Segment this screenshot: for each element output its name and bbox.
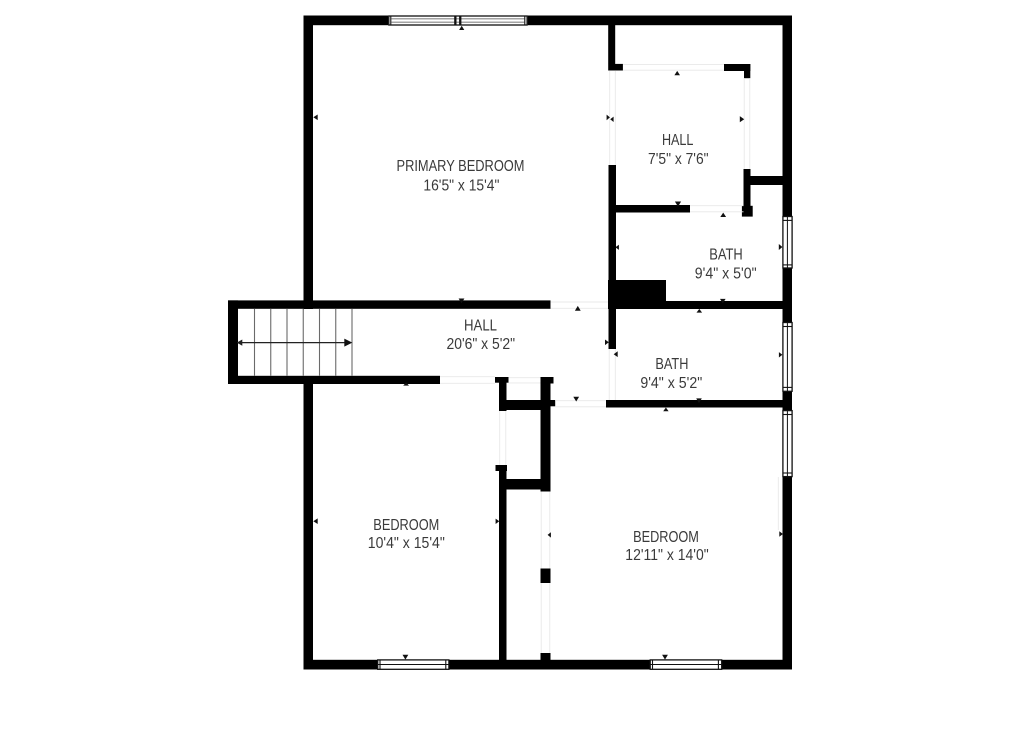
svg-text:HALL: HALL (464, 317, 497, 334)
svg-text:10'4" x 15'4": 10'4" x 15'4" (368, 535, 445, 552)
svg-text:7'5" x 7'6": 7'5" x 7'6" (648, 151, 709, 168)
svg-text:9'4" x 5'0": 9'4" x 5'0" (695, 266, 757, 283)
svg-text:BEDROOM: BEDROOM (633, 529, 699, 546)
svg-text:HALL: HALL (662, 132, 694, 149)
svg-text:12'11" x 14'0": 12'11" x 14'0" (625, 547, 708, 564)
svg-text:BEDROOM: BEDROOM (373, 517, 439, 534)
svg-text:PRIMARY BEDROOM: PRIMARY BEDROOM (397, 158, 525, 175)
svg-text:20'6" x 5'2": 20'6" x 5'2" (446, 336, 515, 353)
svg-text:BATH: BATH (709, 247, 743, 264)
svg-text:16'5" x 15'4": 16'5" x 15'4" (423, 178, 499, 195)
svg-text:BATH: BATH (655, 356, 688, 373)
svg-text:9'4" x 5'2": 9'4" x 5'2" (640, 375, 702, 392)
